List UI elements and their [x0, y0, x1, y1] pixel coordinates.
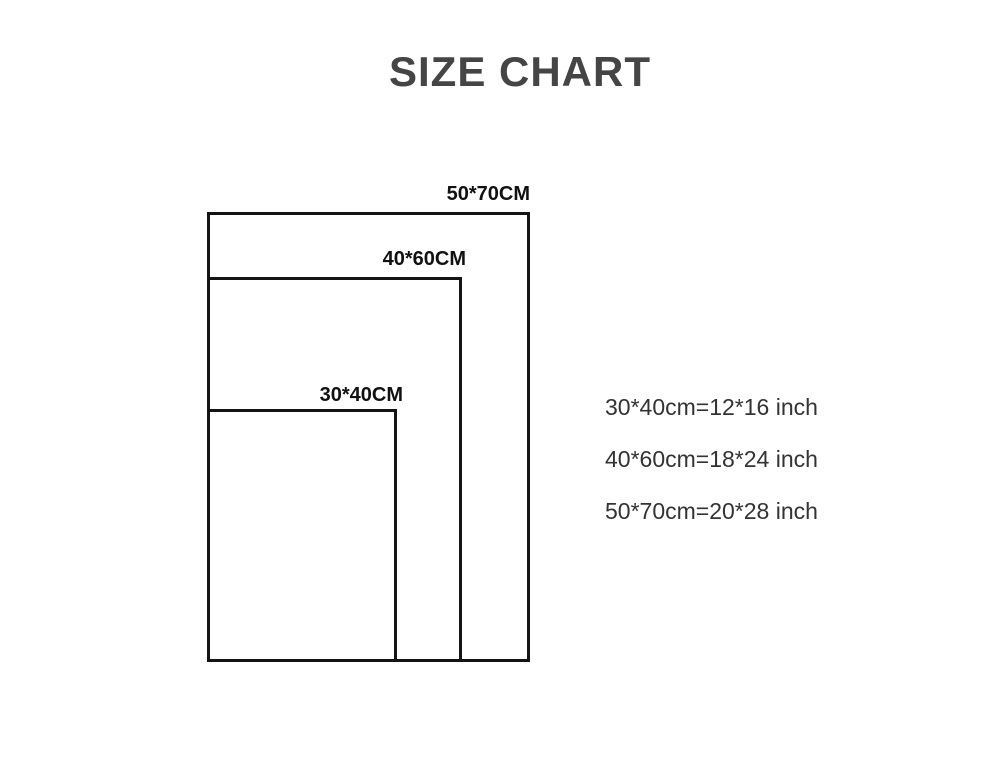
conversion-line-30x40: 30*40cm=12*16 inch: [605, 393, 818, 421]
page-title: SIZE CHART: [0, 48, 990, 96]
size-label-40x60cm: 40*60CM: [383, 248, 466, 271]
size-chart-page: SIZE CHART 50*70CM 40*60CM 30*40CM 30*40…: [0, 0, 990, 772]
conversion-line-40x60: 40*60cm=18*24 inch: [605, 445, 818, 473]
size-rect-30x40cm: [207, 409, 397, 662]
size-label-30x40cm: 30*40CM: [320, 384, 403, 407]
conversion-legend: 30*40cm=12*16 inch 40*60cm=18*24 inch 50…: [605, 393, 818, 525]
size-label-50x70cm: 50*70CM: [447, 183, 530, 206]
conversion-line-50x70: 50*70cm=20*28 inch: [605, 497, 818, 525]
